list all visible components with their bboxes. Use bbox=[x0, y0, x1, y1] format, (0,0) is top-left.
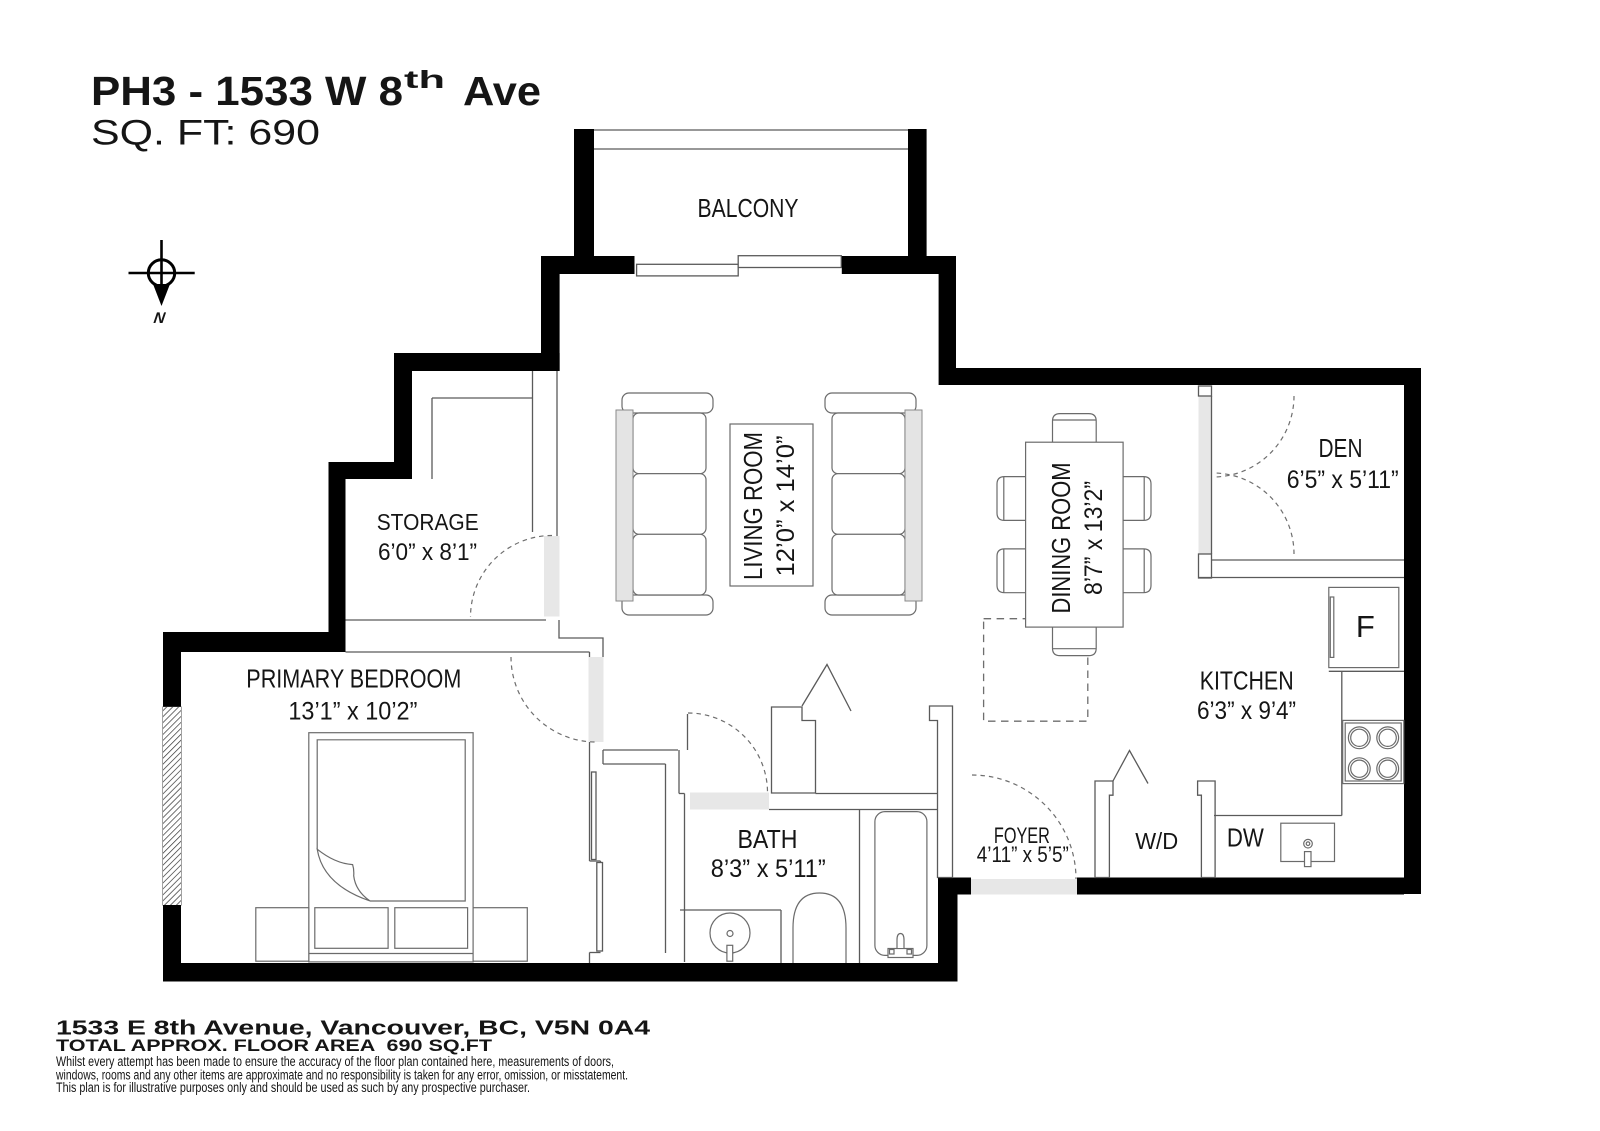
svg-text:F: F bbox=[1356, 609, 1375, 644]
svg-text:8’7” x 13’2”: 8’7” x 13’2” bbox=[1080, 481, 1108, 595]
svg-text:KITCHEN: KITCHEN bbox=[1200, 666, 1294, 696]
svg-text:DEN: DEN bbox=[1319, 433, 1363, 463]
svg-text:TOTAL APPROX. FLOOR AREA 690: TOTAL APPROX. FLOOR AREA 690 SQ.FT bbox=[56, 1036, 493, 1055]
svg-text:PH3 - 1533 W 8: PH3 - 1533 W 8 bbox=[91, 68, 403, 114]
svg-text:SQ. FT: 690: SQ. FT: 690 bbox=[91, 114, 320, 153]
svg-text:DINING ROOM: DINING ROOM bbox=[1046, 463, 1076, 614]
svg-text:LIVING ROOM: LIVING ROOM bbox=[738, 432, 768, 580]
svg-text:6’0” x 8’1”: 6’0” x 8’1” bbox=[378, 539, 477, 566]
svg-text:13’1” x 10’2”: 13’1” x 10’2” bbox=[288, 698, 417, 726]
svg-text:BATH: BATH bbox=[738, 824, 798, 854]
svg-text:Ave: Ave bbox=[463, 68, 541, 114]
svg-text:12’0” x 14’0”: 12’0” x 14’0” bbox=[772, 436, 800, 577]
svg-text:This plan is for illustrative: This plan is for illustrative purposes o… bbox=[56, 1080, 530, 1095]
svg-text:STORAGE: STORAGE bbox=[377, 509, 479, 535]
svg-text:4’11” x 5’5”: 4’11” x 5’5” bbox=[977, 842, 1069, 867]
svg-text:BALCONY: BALCONY bbox=[698, 193, 799, 223]
svg-text:PRIMARY BEDROOM: PRIMARY BEDROOM bbox=[246, 664, 461, 694]
svg-text:DW: DW bbox=[1227, 823, 1264, 853]
svg-text:6’5” x 5’11”: 6’5” x 5’11” bbox=[1287, 466, 1399, 494]
svg-text:th: th bbox=[404, 66, 445, 94]
svg-text:6’3” x 9’4”: 6’3” x 9’4” bbox=[1197, 697, 1296, 725]
svg-text:W/D: W/D bbox=[1135, 828, 1178, 854]
svg-text:8’3” x 5’11”: 8’3” x 5’11” bbox=[711, 855, 826, 883]
